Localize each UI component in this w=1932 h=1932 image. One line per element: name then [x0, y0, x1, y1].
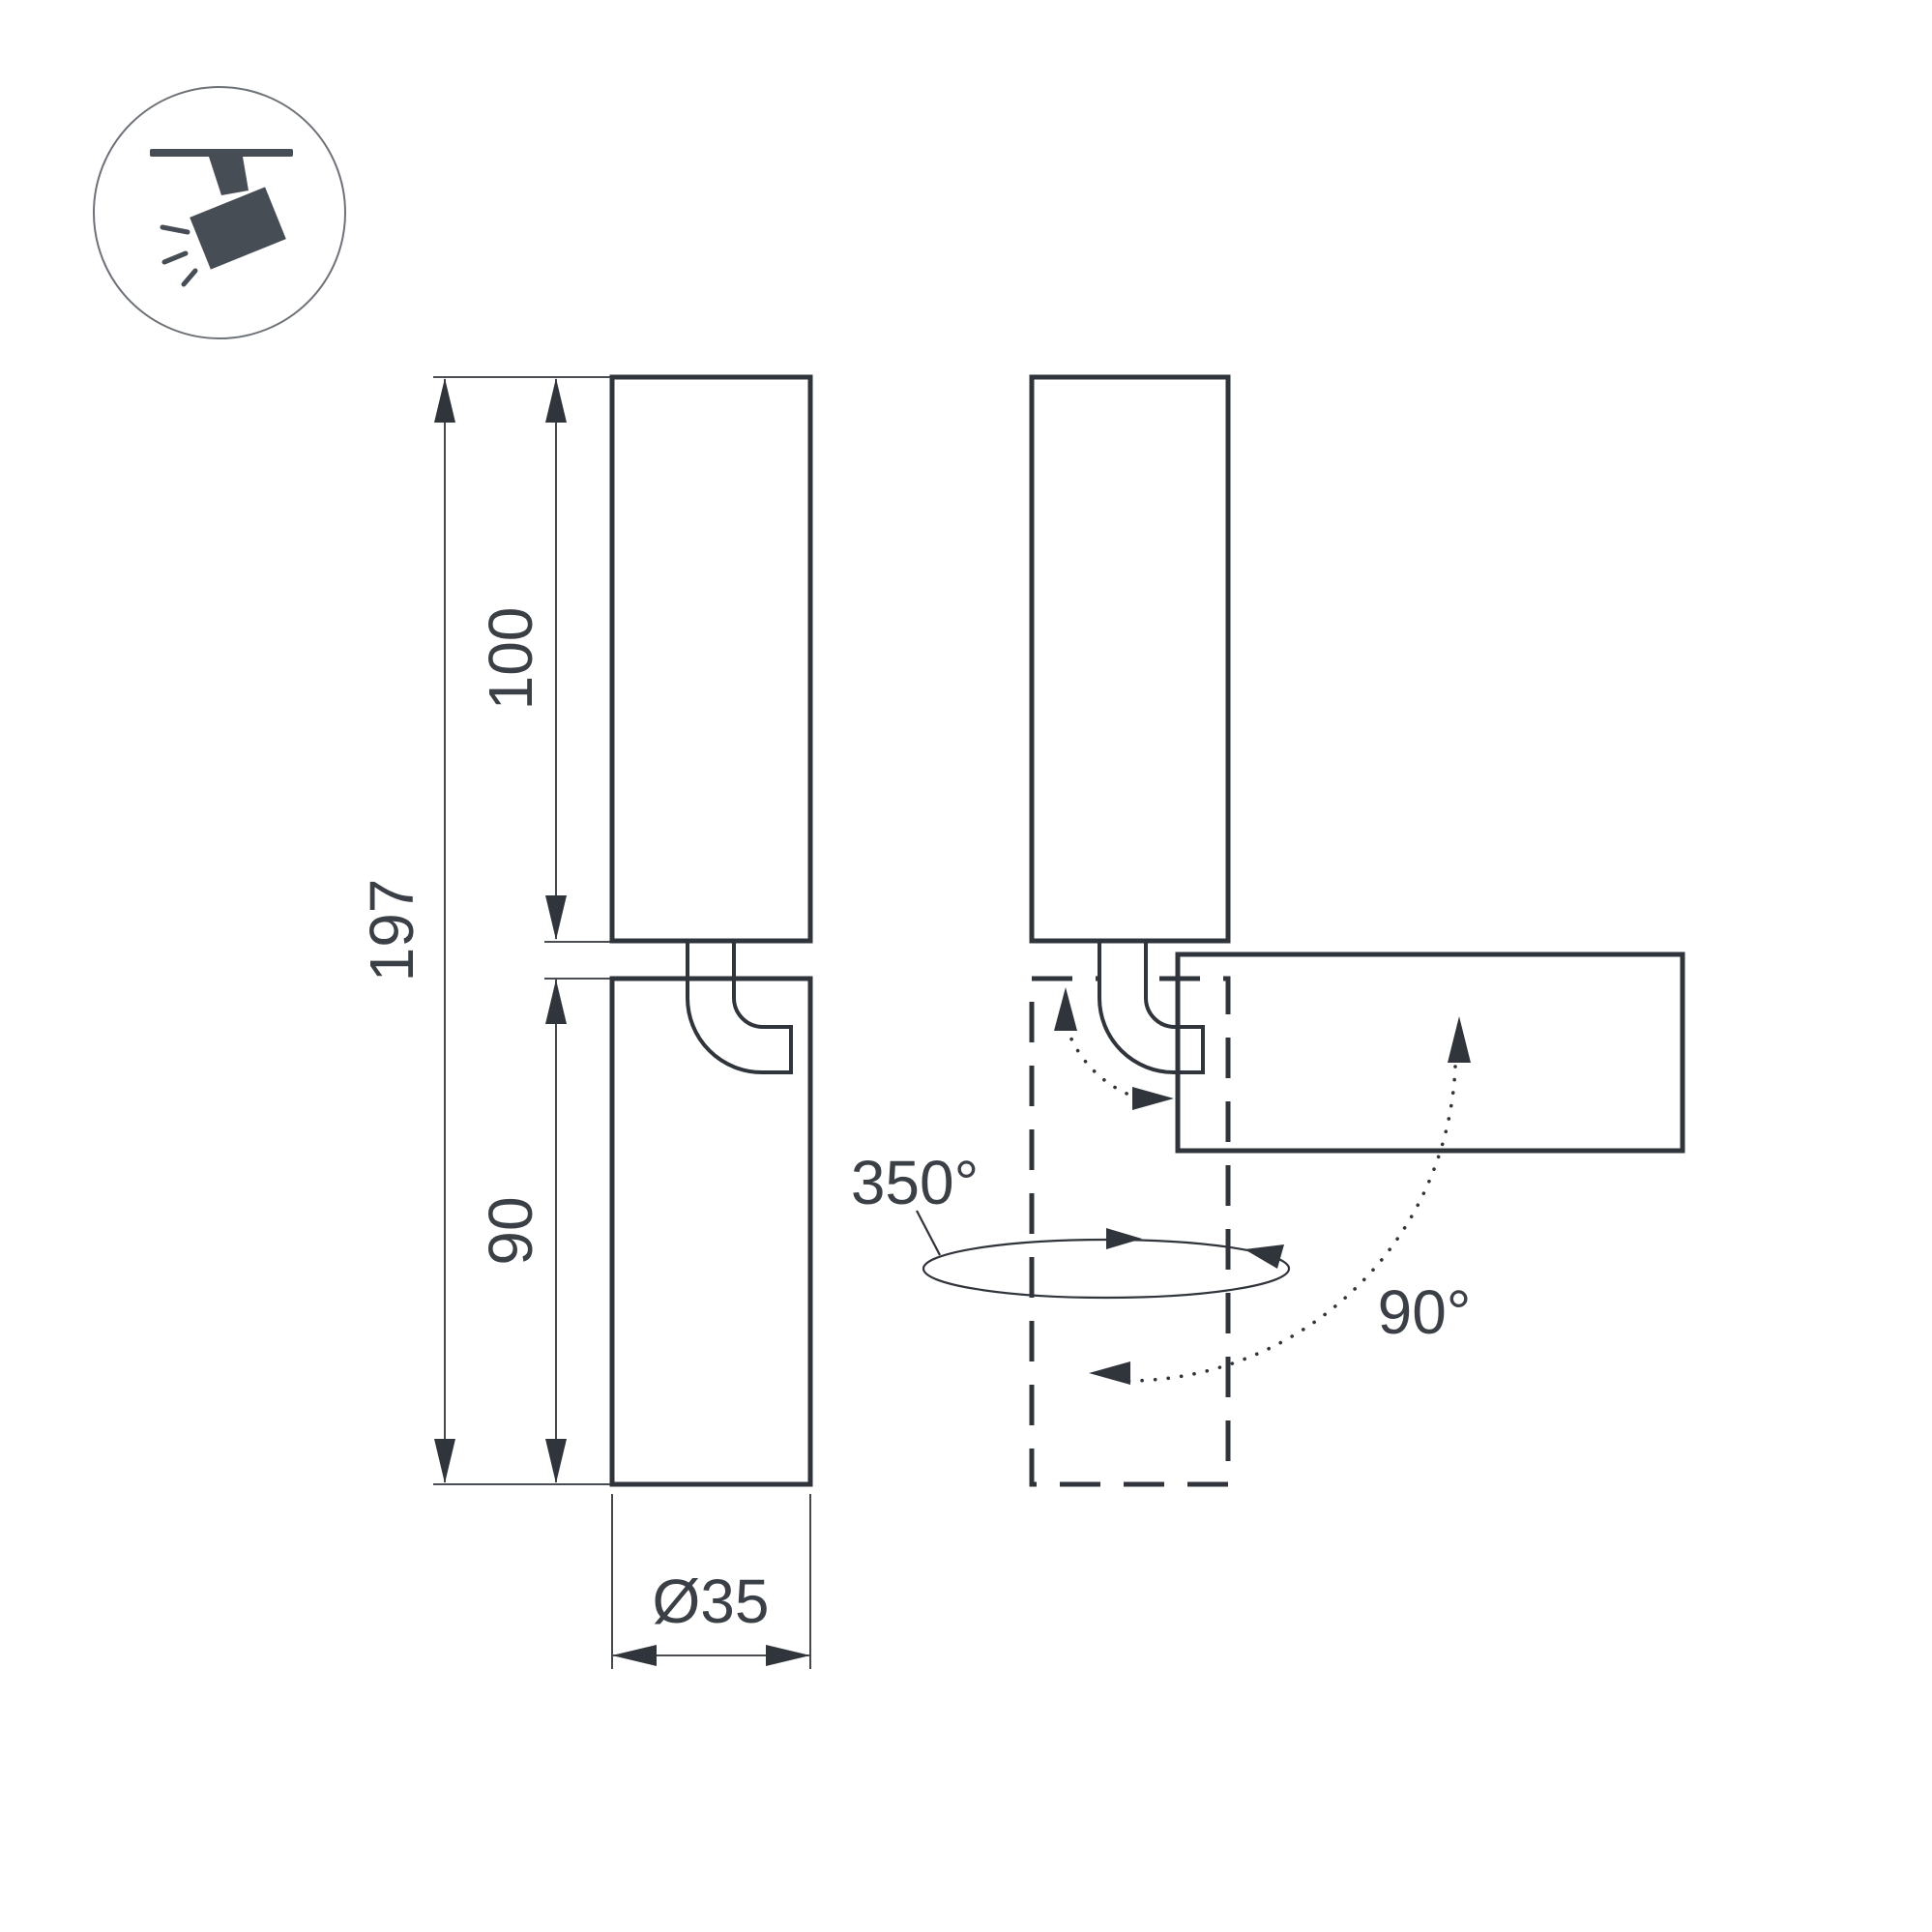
arrow-right-icon	[1106, 1228, 1142, 1249]
arrow-left-icon	[1089, 1361, 1130, 1385]
arrow-up-icon	[545, 378, 567, 423]
side-head-rotated	[1178, 954, 1683, 1151]
arrow-right-icon	[766, 1645, 810, 1666]
dimension-label-total: 197	[357, 879, 426, 982]
front-upper-body	[612, 377, 810, 941]
front-view: 197 100 90 Ø35	[357, 377, 810, 1669]
mount-type-icon	[94, 87, 345, 338]
side-view: 350° 90°	[851, 377, 1683, 1484]
tilt-angle-label: 90°	[1378, 1277, 1472, 1347]
arrow-down-icon	[434, 1439, 455, 1483]
arrow-down-icon	[545, 895, 567, 940]
dimension-upper-body: 100	[476, 378, 567, 940]
dimension-total-height: 197	[357, 378, 455, 1483]
side-elbow-joint	[1099, 938, 1203, 1072]
arrow-up-icon	[1054, 987, 1077, 1031]
arrow-down-icon	[545, 1439, 567, 1483]
technical-drawing: 197 100 90 Ø35	[0, 0, 1932, 1932]
arrow-up-icon	[545, 980, 567, 1024]
arrow-right-icon	[1132, 1087, 1174, 1110]
side-upper-body	[1032, 377, 1228, 941]
arrow-left-icon	[612, 1645, 657, 1666]
dimension-label-lower: 90	[476, 1196, 545, 1265]
arrow-up-icon	[1448, 1016, 1471, 1063]
swivel-angle-label: 350°	[851, 1148, 979, 1217]
arrow-up-icon	[434, 378, 455, 423]
ceiling-line-icon	[150, 149, 293, 157]
arrow-left-icon	[1244, 1244, 1284, 1269]
tilt-indicator-large: 90°	[1089, 1016, 1471, 1385]
drawing-canvas: 197 100 90 Ø35	[0, 0, 1932, 1932]
dimension-diameter: Ø35	[612, 1494, 810, 1669]
dimension-label-diameter: Ø35	[653, 1566, 770, 1636]
swivel-indicator: 350°	[851, 1148, 1289, 1298]
dimension-lower-body: 90	[476, 980, 567, 1483]
extension-lines	[433, 377, 612, 1484]
dimension-label-upper: 100	[476, 607, 545, 711]
